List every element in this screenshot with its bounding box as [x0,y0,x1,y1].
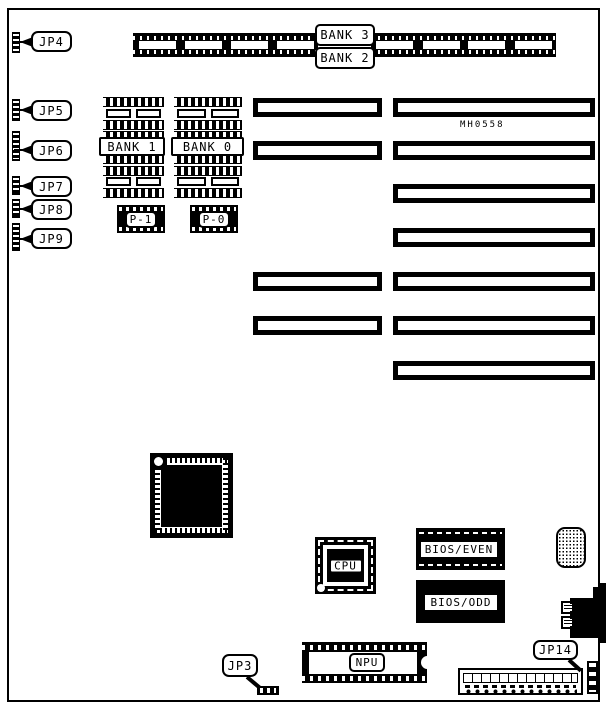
qfp-chip [150,453,233,538]
pin-row [103,120,164,130]
cpu-label: CPU [329,558,363,573]
isa-slot-segment [253,272,382,291]
dip-socket [468,41,505,49]
isa-slot-segment [393,361,595,380]
pin-row [103,97,164,107]
pin-row [103,188,164,198]
jp14-jumper-block [587,661,598,694]
isa-slot-segment [253,316,382,335]
chip-row [174,109,242,118]
bios-even-label: BIOS/EVEN [419,540,499,559]
bios-odd-chip: BIOS/ODD [416,580,505,623]
bank1-label: BANK 1 [99,137,165,156]
jp9-label: JP9 [31,228,72,249]
bank2-label: BANK 2 [315,47,375,69]
jp6-jumper-block [12,131,20,161]
isa-slot-segment [393,184,595,203]
isa-slot-segment [253,98,382,117]
bios-odd-label: BIOS/ODD [423,593,499,612]
crystal-oscillator [556,527,586,568]
dip-chip [177,109,206,118]
jp5-label: JP5 [31,100,72,121]
dip-socket [231,41,268,49]
pin-row [174,166,242,176]
dip-chip [211,177,240,186]
chip-row [103,177,164,186]
pin-row [174,97,242,107]
isa-slot-segment [253,141,382,160]
dip-chip [136,109,161,118]
part-number-text: MH0558 [460,120,505,130]
dip-chip [177,177,206,186]
connector-plug [561,601,575,614]
dip-socket [277,41,314,49]
dip-chip [106,109,131,118]
pin1-dot-icon [154,457,163,466]
chip-row [103,109,164,118]
pin-square-row [463,673,578,683]
jp14-label: JP14 [533,640,578,660]
pin1-dot-icon [317,584,325,592]
motherboard-diagram: JP4 BANK 3 BANK 2 JP5 JP6 JP7 JP8 JP9 [0,0,606,711]
socket-notch-icon [421,656,427,669]
qfp-die [161,465,222,527]
jp6-label: JP6 [31,140,72,161]
chip-row [174,177,242,186]
jp4-label: JP4 [31,31,72,52]
dip-socket [185,41,222,49]
jp3-label: JP3 [222,654,258,677]
header-connector [458,668,583,695]
pin-row [174,120,242,130]
cpu-chip: CPU [315,537,376,594]
dip-socket [515,41,552,49]
dip-socket [423,41,460,49]
bank3-label: BANK 3 [315,24,375,46]
dip-chip [211,109,240,118]
isa-slot-segment [393,316,595,335]
npu-socket: NPU [302,642,427,683]
bios-even-chip: BIOS/EVEN [416,528,505,570]
npu-label: NPU [349,653,385,672]
p0-label: P-0 [198,211,230,228]
p1-label: P-1 [125,211,157,228]
bank0-label: BANK 0 [171,137,244,156]
dip-chip [106,177,131,186]
connector-plug [561,616,575,629]
p1-parity-chip: P-1 [117,205,165,233]
pin-dot-row [464,689,577,694]
dip-chip [136,177,161,186]
isa-slot-segment [393,98,595,117]
p0-parity-chip: P-0 [190,205,238,233]
isa-slot-segment [393,141,595,160]
pin-row [174,188,242,198]
jp8-label: JP8 [31,199,72,220]
jp9-jumper-block [12,223,20,251]
pin-dash-row [465,685,576,688]
pin-row [103,166,164,176]
dip-socket [376,41,413,49]
dip-socket [139,41,176,49]
isa-slot-segment [393,228,595,247]
isa-slot-segment [393,272,595,291]
jp7-label: JP7 [31,176,72,197]
